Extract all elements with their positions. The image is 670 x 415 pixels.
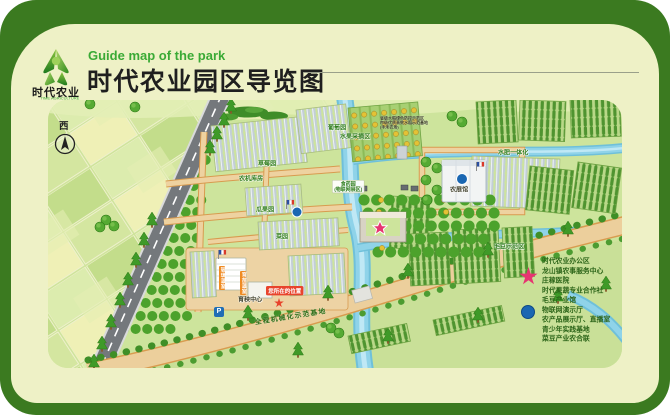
label-seedling-center: 育秧中心 <box>238 295 262 304</box>
map-illustration: 西 <box>48 100 622 368</box>
label-vegetable-garden: 菜园 <box>276 232 288 241</box>
label-machine-shed: 农机库房 <box>239 174 263 183</box>
label-rice-base: 省级水稻绿色防控示范区 市级优质高效水稻示范基地 (丰禾农场) <box>380 116 428 130</box>
sign-glass-greenhouse: 玻璃温室 <box>219 266 225 290</box>
label-expo-hall: 农展馆 <box>450 185 468 194</box>
label-fruit-picking: 水果采摘区 <box>340 132 370 141</box>
compass-west-label: 西 <box>59 121 69 132</box>
label-strawberry-garden: 草莓园 <box>258 159 276 168</box>
card: 时代农业 TIME AGRICULTURE Guide map of the p… <box>11 24 659 403</box>
subtitle-en: Guide map of the park <box>88 48 225 63</box>
label-water-fertilizer: 水肥一体化 <box>498 148 528 157</box>
you-are-here-badge: 您所在的位置 <box>266 286 303 295</box>
label-herb-garden: 食药园 (物联网展区) <box>332 180 364 193</box>
parking-icon: P <box>214 307 224 317</box>
sign-nursery-greenhouse: 育苗温室 <box>240 271 246 295</box>
label-grape-garden: 葡萄园 <box>328 123 346 132</box>
park-logo-icon <box>36 48 76 86</box>
page-title: 时代农业园区导览图 <box>87 62 326 98</box>
park-map: 西 草莓园 农机库房 葡萄园 水果采摘区 瓜果园 菜园 水肥一体化 毛豆示范区 … <box>48 100 622 368</box>
label-soybean-demo: 毛豆示范区 <box>494 242 524 251</box>
label-melon-garden: 瓜果园 <box>256 205 274 214</box>
title-divider <box>303 72 639 73</box>
poster: 时代农业 TIME AGRICULTURE Guide map of the p… <box>0 0 670 415</box>
